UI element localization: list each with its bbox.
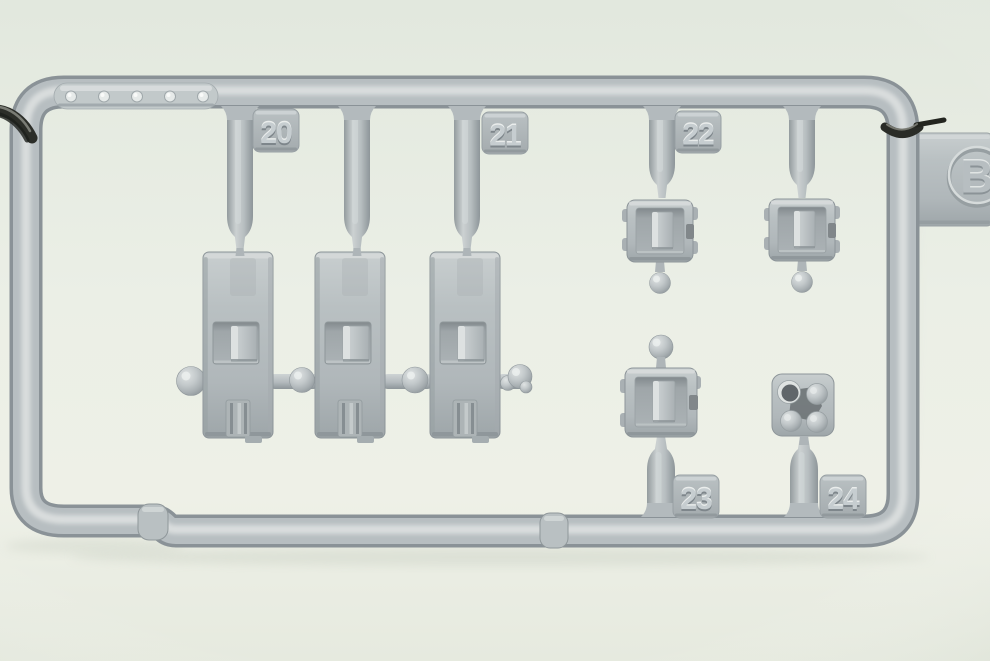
sprue-photo: B B B [0, 0, 990, 661]
part-tag-24: 24 24 24 [820, 475, 866, 518]
alignment-dot [132, 91, 143, 102]
part-disc [807, 412, 828, 433]
part-tag-21: 21 21 21 [482, 112, 528, 155]
runner-part21 [454, 104, 480, 250]
part-tag-20: 20 20 20 [253, 109, 299, 152]
part-tag-23: 23 23 23 [673, 475, 719, 518]
gate-ball [649, 335, 673, 359]
runner-part20b [344, 104, 370, 250]
photo-canvas: B B B [0, 0, 990, 661]
part-number: 21 [489, 120, 521, 153]
runner-part20 [227, 104, 253, 250]
part-number: 20 [260, 117, 292, 150]
alignment-dot-plate [54, 83, 218, 109]
part-breech-20-right [315, 252, 385, 443]
alignment-dot [198, 91, 209, 102]
gate-ball [402, 367, 428, 393]
part-breech-21 [430, 252, 500, 443]
part-discs-24 [772, 374, 834, 445]
gate-ball [177, 367, 206, 396]
part-disc [807, 384, 828, 405]
part-breech-20-left [203, 252, 273, 443]
part-tag-22: 22 22 22 [675, 111, 721, 154]
part-number: 24 [827, 483, 860, 516]
part-number: 22 [682, 119, 714, 152]
alignment-dot [99, 91, 110, 102]
alignment-dot [165, 91, 176, 102]
sprue-letter: B [960, 151, 990, 203]
gate-ball [290, 368, 315, 393]
alignment-dot [66, 91, 77, 102]
part-number: 23 [680, 483, 712, 516]
part-disc [781, 411, 802, 432]
